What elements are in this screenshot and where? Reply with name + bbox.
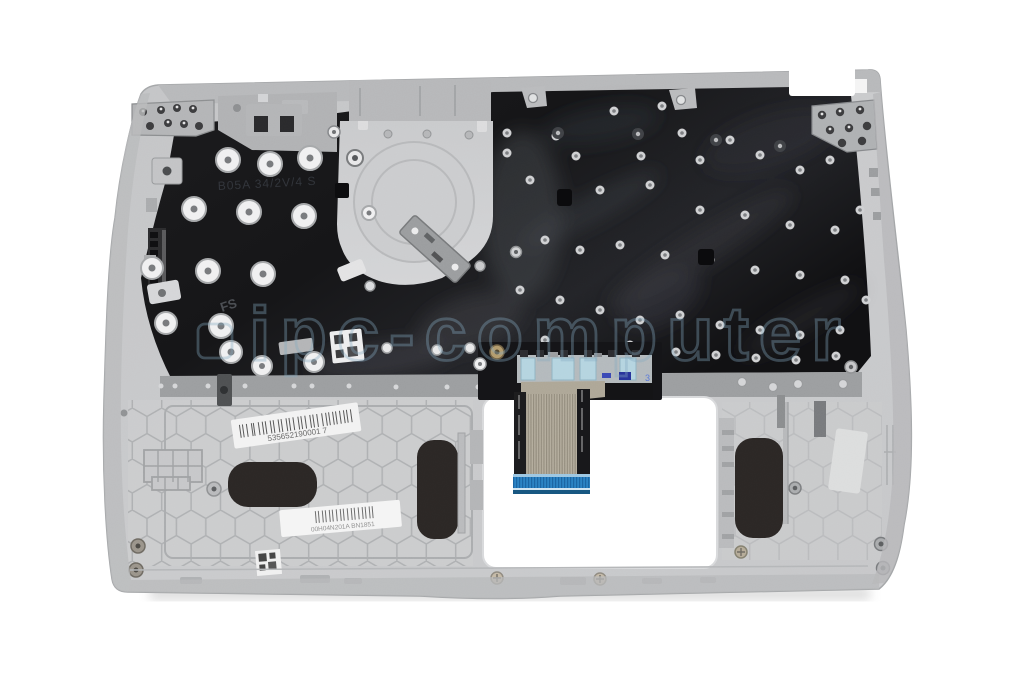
svg-text:ipc-computer: ipc-computer bbox=[249, 292, 850, 377]
